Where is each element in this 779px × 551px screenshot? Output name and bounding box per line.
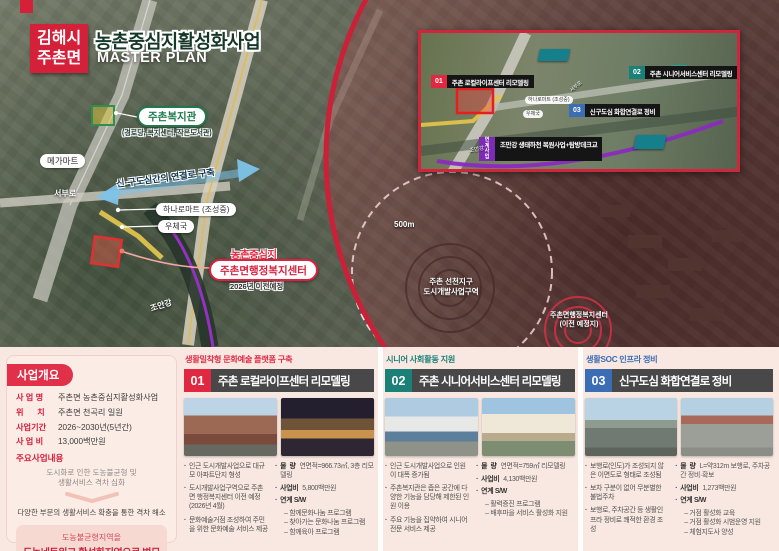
field-value: 13,000백만원 bbox=[58, 437, 106, 447]
master-plan-poster: 김해시 주촌면 농촌중심지활성화사업 MASTER PLAN 메가마트 서부로 … bbox=[0, 0, 779, 551]
inset-item-03-label: 신구도심 화합연결로 정비 bbox=[585, 104, 661, 117]
photo-senior-center-current bbox=[385, 398, 478, 456]
aerial-inset: 01 주촌 로컬라이프센터 리모델링 02 주촌 시니어서비스센터 리모델링 0… bbox=[418, 30, 740, 172]
issue-item: 보행로(인도)가 조성되지 않은 이면도로 형태로 조성됨 bbox=[585, 462, 668, 480]
project-01-header: 01 주촌 로컬라이프센터 리모델링 bbox=[184, 369, 374, 392]
label-megamart: 메가마트 bbox=[40, 154, 85, 168]
spec-label: 사업비 bbox=[280, 485, 298, 492]
field-value: 주촌면 농촌중심지활성화사업 bbox=[58, 393, 158, 403]
spec-value: 4,130백만원 bbox=[503, 476, 537, 483]
overview-field-name: 사 업 명 주촌면 농촌중심지활성화사업 bbox=[16, 393, 167, 403]
inset-label-hanaro: 하나로마트 (조성중) bbox=[525, 96, 573, 104]
project-01-photos bbox=[184, 398, 374, 456]
inset-linked-project: 연계 사업 조만강 생태하천 복원사업+탐방데크교 bbox=[479, 137, 602, 161]
spec-cost: 사업비5,800백만원 bbox=[275, 484, 374, 493]
spec-label: 물 량 bbox=[280, 463, 295, 470]
issue-item: 보행로, 주차공간 등 생활인프라 정비로 쾌적한 환경 조성 bbox=[585, 506, 668, 533]
project-02-title: 주촌 시니어서비스센터 리모델링 bbox=[412, 369, 575, 392]
project-column-01: 생활밀착형 문화예술 플랫폼 구축 01 주촌 로컬라이프센터 리모델링 인근 … bbox=[184, 347, 374, 551]
project-02-number: 02 bbox=[385, 369, 412, 392]
label-500m-radius: 500m bbox=[394, 220, 414, 229]
spec-label: 물 량 bbox=[680, 463, 695, 470]
district-line1: 주촌 선천지구 bbox=[408, 277, 494, 287]
issue-item: 인근 도시개발사업으로 인원이 대폭 증가됨 bbox=[385, 462, 469, 480]
overview-field-location: 위 치 주촌면 천곡리 일원 bbox=[16, 408, 167, 418]
photo-locallife-center-night bbox=[281, 398, 374, 456]
inset-item-01: 01 주촌 로컬라이프센터 리모델링 bbox=[431, 75, 534, 88]
inset-item-03-number: 03 bbox=[569, 104, 585, 117]
inset-item-03: 03 신구도심 화합연결로 정비 bbox=[569, 104, 660, 117]
spec-label: 연계 S/W bbox=[481, 488, 507, 495]
goal-line1: 도농불균형지역을 bbox=[20, 532, 163, 543]
label-development-district: 주촌 선천지구 도시개발사업구역 bbox=[408, 277, 494, 297]
spec-cost: 사업비1,273백만원 bbox=[675, 484, 773, 493]
corner-flag bbox=[20, 0, 33, 13]
spec-value: 연면적=759㎡ 리모델링 bbox=[500, 463, 565, 470]
spec-quantity: 물 량연면적=966.73㎡, 3층 리모델링 bbox=[275, 462, 374, 480]
overview-title: 사업개요 bbox=[7, 364, 73, 386]
spec-label: 물 량 bbox=[481, 463, 496, 470]
spec-quantity: 물 량L=약312m 보행로, 주차공간 정비·확보 bbox=[675, 462, 773, 480]
sw-item: 거점 활성화 교육 bbox=[675, 509, 773, 518]
relocation-line2: (이전 예정지) bbox=[538, 320, 620, 329]
field-label: 위 치 bbox=[16, 408, 58, 418]
sw-item: 활력증진 프로그램 bbox=[476, 500, 575, 509]
spec-quantity: 물 량연면적=759㎡ 리모델링 bbox=[476, 462, 575, 471]
project-column-03: 생활SOC 인프라 정비 03 신구도심 화합연결로 정비 보행로(인도)가 조… bbox=[585, 347, 773, 551]
problem-statement: 도시화로 인한 도농불균형 및 생활서비스 격차 심화 bbox=[16, 468, 167, 489]
inset-item-02-number: 02 bbox=[629, 66, 645, 79]
project-02-photos bbox=[385, 398, 575, 456]
issue-item: 주요 기능을 집약하여 시니어 전문 서비스 제공 bbox=[385, 516, 469, 534]
project-03-details: 보행로(인도)가 조성되지 않은 이면도로 형태로 조성됨 보차 구분이 없어 … bbox=[585, 462, 773, 538]
sw-item: 함께문화나눔 프로그램 bbox=[275, 509, 374, 518]
spec-label: 연계 S/W bbox=[680, 497, 706, 504]
project-01-title: 주촌 로컬라이프센터 리모델링 bbox=[211, 369, 374, 392]
goal-box: 도농불균형지역을 도농네트워크 활성화지역으로 변모 bbox=[16, 525, 167, 551]
project-overview-panel: 사업개요 사 업 명 주촌면 농촌중심지활성화사업 위 치 주촌면 천곡리 일원… bbox=[6, 355, 177, 543]
spec-sw-header: 연계 S/W bbox=[275, 496, 374, 505]
project-01-number: 01 bbox=[184, 369, 211, 392]
project-column-02: 시니어 사회활동 지원 02 주촌 시니어서비스센터 리모델링 인근 도시개발사… bbox=[385, 347, 575, 551]
inset-linked-label: 조만강 생태하천 복원사업+탐방데크교 bbox=[495, 137, 602, 161]
spec-cost: 사업비4,130백만원 bbox=[476, 475, 575, 484]
photo-road-street bbox=[681, 398, 773, 456]
sw-item: 찾아가는 문화나눔 프로그램 bbox=[275, 518, 374, 527]
issue-item: 문화예술거점 조성하여 주민을 위한 문화예술 서비스 제공 bbox=[184, 516, 268, 534]
project-03-title: 신구도심 화합연결로 정비 bbox=[612, 369, 773, 392]
spec-value: 1,273백만원 bbox=[702, 485, 736, 492]
inset-item-02-label: 주촌 시니어서비스센터 리모델링 bbox=[645, 66, 738, 79]
project-02-category: 시니어 사회활동 지원 bbox=[386, 353, 575, 365]
spec-label: 연계 S/W bbox=[280, 497, 306, 504]
label-admin-center-note: 2026년 이전예정 bbox=[230, 281, 283, 292]
inset-item-02: 02 주촌 시니어서비스센터 리모델링 bbox=[629, 66, 737, 79]
label-admin-center: 주촌면행정복지센터 bbox=[209, 259, 318, 281]
field-value: 주촌면 천곡리 일원 bbox=[58, 408, 123, 418]
inset-item-01-label: 주촌 로컬라이프센터 리모델링 bbox=[447, 75, 534, 88]
overview-field-period: 사업기간 2026~2030년(5년간) bbox=[16, 423, 167, 433]
direction-sign bbox=[538, 49, 571, 61]
label-hanaro-mart: 하나로마트 (조성중) bbox=[156, 203, 236, 216]
overview-field-budget: 사 업 비 13,000백만원 bbox=[16, 437, 167, 447]
sw-item: 함께육아 프로그램 bbox=[275, 528, 374, 537]
city-badge-line1: 김해시 bbox=[37, 29, 81, 49]
label-welfare-center: 주촌복지관 bbox=[137, 106, 207, 127]
photo-road-bridge bbox=[585, 398, 677, 456]
field-label: 사업기간 bbox=[16, 423, 58, 433]
project-01-details: 인근 도시개발사업으로 대규모 아파트단지 형성 도시개발사업구역으로 주촌면 … bbox=[184, 462, 374, 538]
label-relocation-site: 주촌면행정복지센터 (이전 예정지) bbox=[538, 311, 620, 329]
city-badge: 김해시 주촌면 bbox=[30, 24, 88, 73]
spec-value: 5,800백만원 bbox=[302, 485, 336, 492]
field-label: 사 업 명 bbox=[16, 393, 58, 403]
column-divider bbox=[578, 347, 583, 551]
issue-item: 도시개발사업구역으로 주촌면 행정복지센터 이전 예정 (2026년 4월) bbox=[184, 484, 268, 511]
column-divider bbox=[378, 347, 383, 551]
problem-line1: 도시화로 인한 도농불균형 및 bbox=[16, 468, 167, 478]
sw-item: 배후마을 서비스 활성화 지원 bbox=[476, 509, 575, 518]
direction-sign bbox=[634, 135, 667, 149]
issue-item: 인근 도시개발사업으로 대규모 아파트단지 형성 bbox=[184, 462, 268, 480]
inset-item-01-number: 01 bbox=[431, 75, 447, 88]
spec-sw-header: 연계 S/W bbox=[675, 496, 773, 505]
chevron-down-icon bbox=[64, 492, 120, 504]
problem-line2: 생활서비스 격차 심화 bbox=[16, 478, 167, 488]
project-03-photos bbox=[585, 398, 773, 456]
issue-item: 주촌복지관은 좁은 공간에 다양한 기능을 담당해 제한된 인원 이용 bbox=[385, 484, 469, 511]
issue-item: 보차 구분이 없어 무분별한 불법주차 bbox=[585, 484, 668, 502]
project-02-header: 02 주촌 시니어서비스센터 리모델링 bbox=[385, 369, 575, 392]
label-seobu-ro: 서부로 bbox=[54, 188, 76, 199]
field-label: 사 업 비 bbox=[16, 437, 58, 447]
page-subtitle: MASTER PLAN bbox=[97, 50, 207, 66]
overview-subtitle: 주요사업내용 bbox=[16, 452, 167, 464]
label-welfare-center-sub: (경로당, 복지센터, 작은도서관) bbox=[122, 128, 212, 138]
spec-label: 사업비 bbox=[481, 476, 499, 483]
sw-item: 거점 활성화 시범운영 지원 bbox=[675, 518, 773, 527]
relocation-line1: 주촌면행정복지센터 bbox=[538, 311, 620, 320]
solution-statement: 다양한 부문의 생활서비스 확충을 통한 격차 해소 bbox=[16, 507, 167, 518]
bottom-panel: 사업개요 사 업 명 주촌면 농촌중심지활성화사업 위 치 주촌면 천곡리 일원… bbox=[0, 347, 779, 551]
spec-label: 사업비 bbox=[680, 485, 698, 492]
project-03-header: 03 신구도심 화합연결로 정비 bbox=[585, 369, 773, 392]
field-value: 2026~2030년(5년간) bbox=[58, 423, 132, 433]
photo-senior-center-rendering bbox=[482, 398, 575, 456]
label-post-office: 우체국 bbox=[158, 220, 194, 233]
city-badge-line2: 주촌면 bbox=[37, 49, 81, 69]
district-line2: 도시개발사업구역 bbox=[408, 287, 494, 297]
project-03-number: 03 bbox=[585, 369, 612, 392]
project-01-category: 생활밀착형 문화예술 플랫폼 구축 bbox=[185, 353, 374, 365]
sw-item: 체험지도사 양성 bbox=[675, 528, 773, 537]
project-02-details: 인근 도시개발사업으로 인원이 대폭 증가됨 주촌복지관은 좁은 공간에 다양한… bbox=[385, 462, 575, 538]
goal-line2: 도농네트워크 활성화지역으로 변모 bbox=[20, 544, 163, 551]
spec-sw-header: 연계 S/W bbox=[476, 487, 575, 496]
photo-locallife-center-day bbox=[184, 398, 277, 456]
project-03-category: 생활SOC 인프라 정비 bbox=[586, 353, 773, 365]
satellite-map: 김해시 주촌면 농촌중심지활성화사업 MASTER PLAN 메가마트 서부로 … bbox=[0, 0, 779, 347]
inset-label-post-office: 우체국 bbox=[523, 110, 543, 118]
